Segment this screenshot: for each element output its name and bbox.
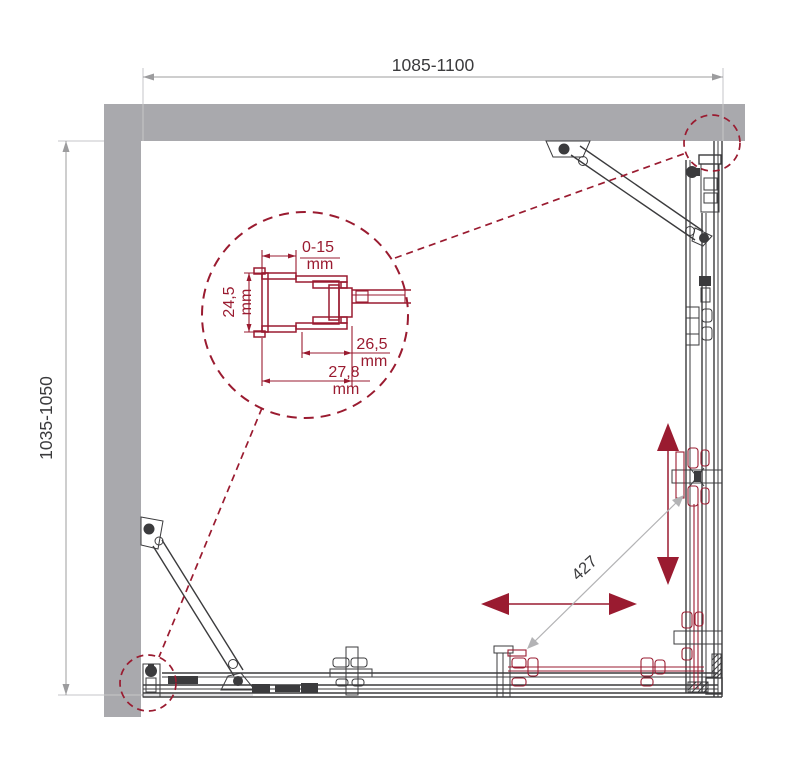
dim-arrow-top: [63, 141, 70, 152]
dimension-left: 1035-1050: [36, 141, 253, 695]
plan-view-svg: 1085-1100 1035-1050: [0, 0, 800, 773]
detail-width-label: 27,8: [328, 364, 359, 381]
enclosure-frame: [143, 141, 722, 697]
pivot-bolt-icon: [559, 144, 570, 155]
dimension-top-label: 1085-1100: [392, 55, 475, 75]
detail-adjustment-label: 0-15: [302, 239, 334, 256]
dim-arrow-left: [143, 74, 154, 81]
horizontal-slide-arrow-icon: [481, 593, 637, 615]
detail-width-unit: mm: [333, 381, 360, 398]
dimension-left-label: 1035-1050: [36, 376, 56, 460]
dim-arrow-right: [712, 74, 723, 81]
pivot-bolt-icon: [233, 676, 243, 686]
detail-view: 0-15 mm 24,5 mm 26,5 mm 27,8: [202, 212, 411, 418]
right-wall-profile: [686, 155, 721, 302]
corner-post: [688, 654, 722, 694]
entry-width-label: 427: [568, 552, 601, 584]
left-wall-profile: [143, 664, 160, 697]
profile-cross-section: [254, 268, 411, 337]
detail-depth-unit: mm: [238, 289, 255, 316]
pivot-bolt-icon: [699, 233, 709, 243]
detail-dimensions: 0-15 mm 24,5 mm 26,5 mm 27,8: [221, 239, 390, 398]
left-wall: [104, 104, 141, 717]
pivot-bolt-icon: [144, 524, 155, 535]
shower-enclosure-technical-drawing: 1085-1100 1035-1050: [0, 0, 800, 773]
top-wall: [104, 104, 745, 141]
detail-insert-label: 26,5: [356, 336, 387, 353]
dim-arrow-bottom: [63, 684, 70, 695]
entry-dimension: 427: [527, 495, 684, 649]
slide-arrows: [481, 423, 679, 615]
fixing-knob-icon: [145, 665, 157, 677]
detail-insert-unit: mm: [361, 353, 388, 370]
detail-depth-label: 24,5: [221, 286, 238, 317]
walls: [104, 104, 745, 717]
fixing-knob-icon: [686, 166, 698, 178]
